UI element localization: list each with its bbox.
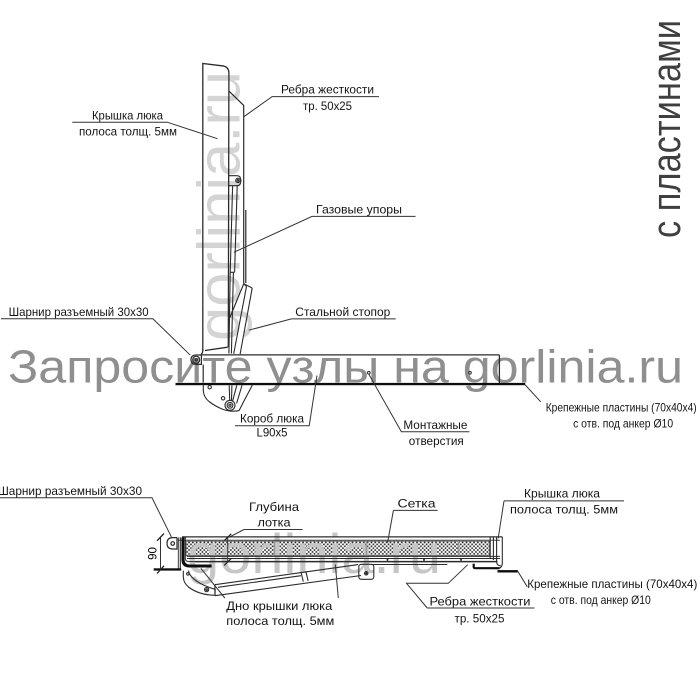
svg-text:с отв. под анкер Ø10: с отв. под анкер Ø10: [573, 417, 673, 431]
svg-text:Ребра жесткости: Ребра жесткости: [430, 595, 531, 609]
svg-text:Газовые упоры: Газовые упоры: [316, 202, 402, 216]
svg-text:Короб люка: Короб люка: [240, 412, 304, 426]
svg-text:полоса толщ. 5мм: полоса толщ. 5мм: [510, 503, 618, 517]
svg-text:90: 90: [148, 547, 160, 560]
svg-text:Стальной стопор: Стальной стопор: [295, 305, 390, 319]
svg-text:L90x5: L90x5: [257, 426, 288, 440]
svg-text:Глубина: Глубина: [249, 500, 299, 514]
svg-text:полоса толщ. 5мм: полоса толщ. 5мм: [226, 614, 334, 628]
svg-text:тр. 50x25: тр. 50x25: [455, 612, 505, 626]
svg-text:Ребра жесткости: Ребра жесткости: [281, 83, 374, 97]
svg-text:Дно крышки люка: Дно крышки люка: [226, 599, 332, 613]
svg-text:Крышка люка: Крышка люка: [92, 108, 163, 122]
svg-text:Шарнир разъемный 30x30: Шарнир разъемный 30x30: [9, 305, 149, 319]
svg-text:с отв. под анкер Ø10: с отв. под анкер Ø10: [551, 593, 651, 607]
svg-text:Крышка люка: Крышка люка: [524, 486, 600, 500]
svg-text:gorlinia.ru: gorlinia.ru: [187, 522, 441, 585]
svg-text:тр. 50x25: тр. 50x25: [303, 99, 352, 113]
svg-text:лотка: лотка: [258, 516, 291, 530]
svg-text:Крепежные пластины (70x40x4): Крепежные пластины (70x40x4): [527, 577, 697, 591]
svg-text:Крепежные пластины (70x40x4): Крепежные пластины (70x40x4): [546, 401, 697, 415]
svg-text:отверстия: отверстия: [409, 434, 464, 448]
svg-text:полоса толщ. 5мм: полоса толщ. 5мм: [79, 124, 177, 138]
svg-text:Шарнир разъемный 30x30: Шарнир разъемный 30x30: [0, 484, 142, 498]
svg-text:Сетка: Сетка: [398, 496, 436, 510]
svg-text:Монтажные: Монтажные: [403, 418, 467, 432]
svg-text:с пластинами: с пластинами: [645, 20, 689, 238]
svg-text:gorlinia.ru: gorlinia.ru: [186, 71, 253, 341]
